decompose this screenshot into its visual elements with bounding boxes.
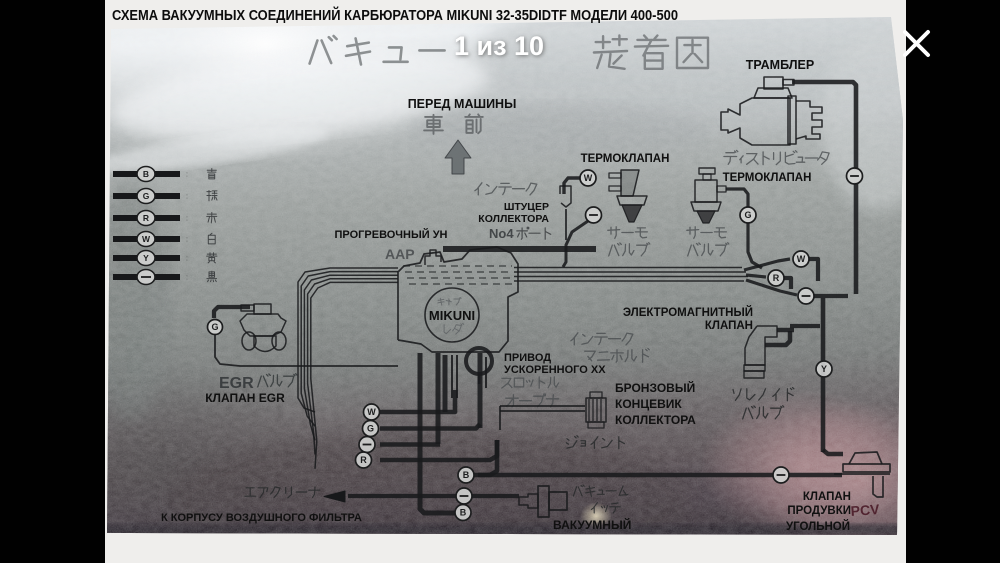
svg-text:ШТУЦЕР: ШТУЦЕР <box>504 201 549 213</box>
svg-text:R: R <box>773 273 780 283</box>
svg-text:ТРАМБЛЕР: ТРАМБЛЕР <box>746 58 814 72</box>
svg-text:PCV: PCV <box>850 501 880 519</box>
svg-text:1 из 10: 1 из 10 <box>454 31 544 61</box>
svg-text:W: W <box>797 254 806 264</box>
svg-text:Y: Y <box>143 253 149 263</box>
svg-text:W: W <box>367 407 376 417</box>
svg-text:B: B <box>143 169 149 179</box>
svg-text:B: B <box>463 470 470 480</box>
svg-text:R: R <box>143 213 149 223</box>
svg-text:No4: No4 <box>489 226 514 241</box>
svg-text:КОНЦЕВИК: КОНЦЕВИК <box>615 397 682 411</box>
svg-text::: : <box>186 216 188 223</box>
svg-text:R: R <box>360 455 367 465</box>
svg-text:ПРОДУВКИ: ПРОДУВКИ <box>787 505 851 517</box>
svg-text:ЭЛЕКТРОМАГНИТНЫЙ: ЭЛЕКТРОМАГНИТНЫЙ <box>623 306 753 319</box>
svg-text::: : <box>186 275 188 282</box>
svg-text:КЛАПАН EGR: КЛАПАН EGR <box>205 391 285 405</box>
svg-text:КОЛЛЕКТОРА: КОЛЛЕКТОРА <box>478 213 549 225</box>
svg-text:КЛАПАН: КЛАПАН <box>705 320 753 332</box>
svg-text:AAP: AAP <box>385 246 415 262</box>
svg-text:ТЕРМОКЛАПАН: ТЕРМОКЛАПАН <box>723 172 812 184</box>
svg-text:G: G <box>143 191 150 201</box>
svg-text:КЛАПАН: КЛАПАН <box>803 491 851 503</box>
svg-text:УСКОРЕННОГО XX: УСКОРЕННОГО XX <box>504 364 606 376</box>
svg-text:УГОЛЬНОЙ: УГОЛЬНОЙ <box>786 520 850 533</box>
svg-text::: : <box>186 172 188 179</box>
svg-text:ПРИВОД: ПРИВОД <box>504 352 551 364</box>
svg-text::: : <box>186 256 188 263</box>
svg-text:G: G <box>367 424 374 434</box>
svg-text:MIKUNI: MIKUNI <box>429 308 475 323</box>
svg-text:EGR: EGR <box>219 375 254 392</box>
svg-text:КОЛЛЕКТОРА: КОЛЛЕКТОРА <box>615 413 696 427</box>
svg-text:Y: Y <box>821 364 827 374</box>
svg-text:СХЕМА ВАКУУМНЫХ СОЕДИНЕНИЙ КАР: СХЕМА ВАКУУМНЫХ СОЕДИНЕНИЙ КАРБЮРАТОРА M… <box>112 6 678 24</box>
svg-text:G: G <box>211 322 218 332</box>
svg-text:ПРОГРЕВОЧНЫЙ УН: ПРОГРЕВОЧНЫЙ УН <box>335 228 448 241</box>
svg-text:W: W <box>584 173 593 183</box>
svg-text:ТЕРМОКЛАПАН: ТЕРМОКЛАПАН <box>581 153 670 165</box>
svg-text:B: B <box>460 508 467 518</box>
svg-text::: : <box>186 194 188 201</box>
svg-text:G: G <box>744 210 751 220</box>
svg-text:ВАКУУМНЫЙ: ВАКУУМНЫЙ <box>553 517 631 532</box>
svg-text:К КОРПУСУ ВОЗДУШНОГО ФИЛЬТРА: К КОРПУСУ ВОЗДУШНОГО ФИЛЬТРА <box>161 512 362 524</box>
svg-text:ПЕРЕД МАШИНЫ: ПЕРЕД МАШИНЫ <box>408 97 517 111</box>
svg-text::: : <box>186 237 188 244</box>
svg-text:W: W <box>142 234 151 244</box>
svg-text:БРОНЗОВЫЙ: БРОНЗОВЫЙ <box>615 380 695 395</box>
